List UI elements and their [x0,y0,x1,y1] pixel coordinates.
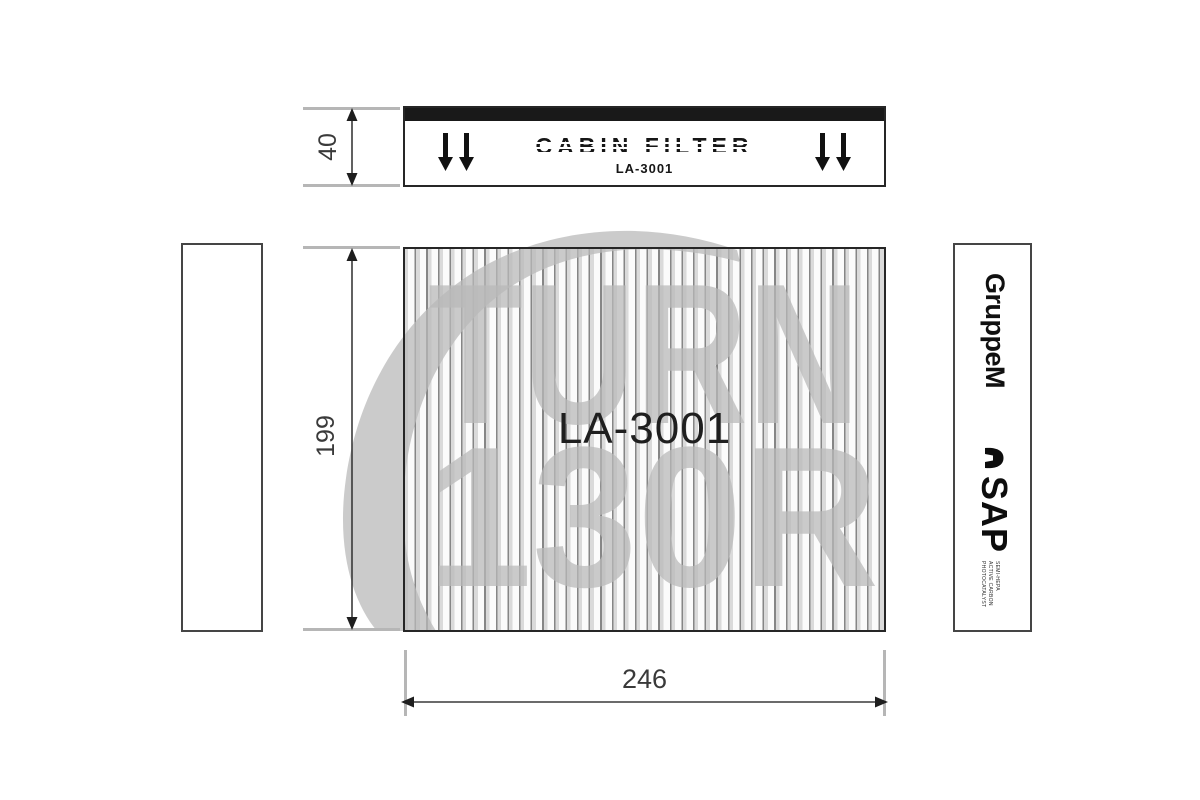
cabin-filter-title: CABIN FILTER [535,133,753,160]
airflow-down-arrows-icon [812,131,854,175]
filter-top-band [405,108,884,121]
brand-logo-text: GruppeM [979,273,1010,388]
airflow-down-arrows-icon [435,131,477,175]
sap-logo-group: SAP SEMI-HEPA ACTIVE CARBON PHOTOCATALYS… [974,446,1016,607]
spec-line: PHOTOCATALYST [981,561,987,607]
front-view-part-number: LA-3001 [403,404,886,454]
dimension-label-top-height: 40 [308,127,348,167]
spec-line: ACTIVE CARBON [988,561,994,607]
spec-line: SEMI-HEPA [995,561,1001,607]
dimension-label-front-width: 246 [403,664,886,694]
filter-side-view: CABIN FILTER LA-3001 [403,106,886,187]
sap-logo-icon [984,446,1005,470]
dimension-label-front-height: 199 [302,412,350,460]
filter-spec-text-block: SEMI-HEPA ACTIVE CARBON PHOTOCATALYST [981,561,1001,607]
dimension-arrow-line [401,692,888,712]
top-view-part-number: LA-3001 [535,161,753,176]
filter-diagram-canvas: 40 CABIN FILTER LA-3001 [0,0,1200,800]
top-view-text: CABIN FILTER LA-3001 [535,133,753,176]
filter-edge-view-left [181,243,263,632]
sap-product-line-text: SAP [974,476,1016,553]
right-panel-rotated-content: GruppeM SAP SEMI-HEPA ACTIVE CARBON PHOT… [955,245,1032,632]
top-view-content: CABIN FILTER LA-3001 [405,121,884,185]
filter-edge-view-right: GruppeM SAP SEMI-HEPA ACTIVE CARBON PHOT… [953,243,1032,632]
